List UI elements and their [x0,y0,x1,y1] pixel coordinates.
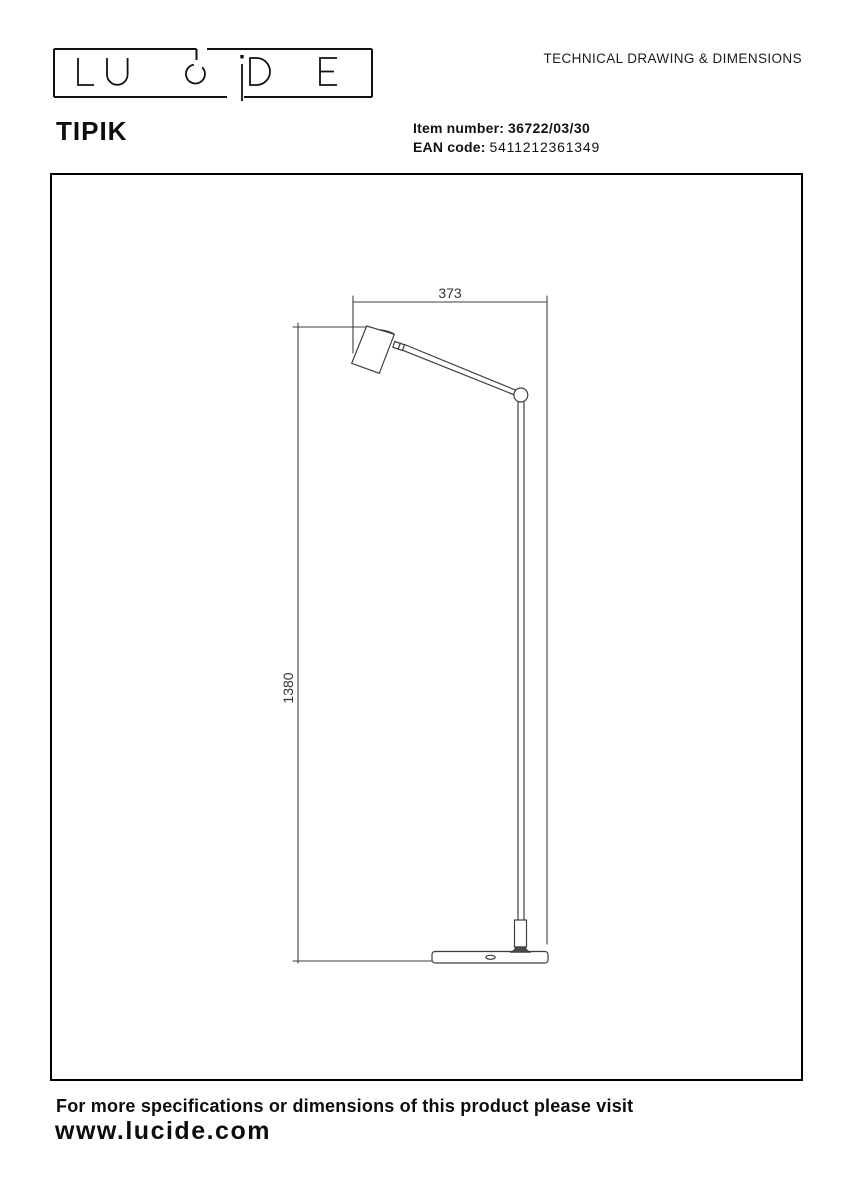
letter-D [250,58,270,85]
product-name: TIPIK [56,116,127,147]
arm-top-edge [405,345,516,391]
lamp-base-plate [432,952,548,964]
ean-value: 5411212361349 [489,139,600,155]
logo-frame [54,49,372,97]
item-number-value: 36722/03/30 [508,120,590,136]
letter-L [78,58,94,85]
product-identifiers: Item number: 36722/03/30 EAN code: 54112… [413,119,600,157]
dimension-height-label: 1380 [280,672,296,703]
letter-U [107,58,128,85]
footer-note: For more specifications or dimensions of… [56,1096,633,1117]
floor-lamp-technical-drawing: 373 1380 [50,173,803,1081]
dimension-width-label: 373 [438,285,462,301]
pole-foot-flare [510,947,531,952]
letter-i-dot [240,55,243,58]
footer-website: www.lucide.com [55,1117,271,1146]
connector-tick [398,343,400,349]
arm-bottom-edge [403,350,514,395]
item-number-label: Item number: [413,120,504,136]
logo-letters [78,55,337,101]
letter-C [186,65,205,84]
item-number-row: Item number: 36722/03/30 [413,119,600,138]
lamp-head [352,326,395,373]
lucide-logo: LUCiDE [53,48,373,104]
ean-label: EAN code: [413,139,486,155]
document-title: TECHNICAL DRAWING & DIMENSIONS [543,51,802,66]
ean-row: EAN code: 5411212361349 [413,138,600,157]
dimension-height: 1380 [280,323,432,963]
pole-collar [515,920,527,947]
letter-E [320,58,337,85]
